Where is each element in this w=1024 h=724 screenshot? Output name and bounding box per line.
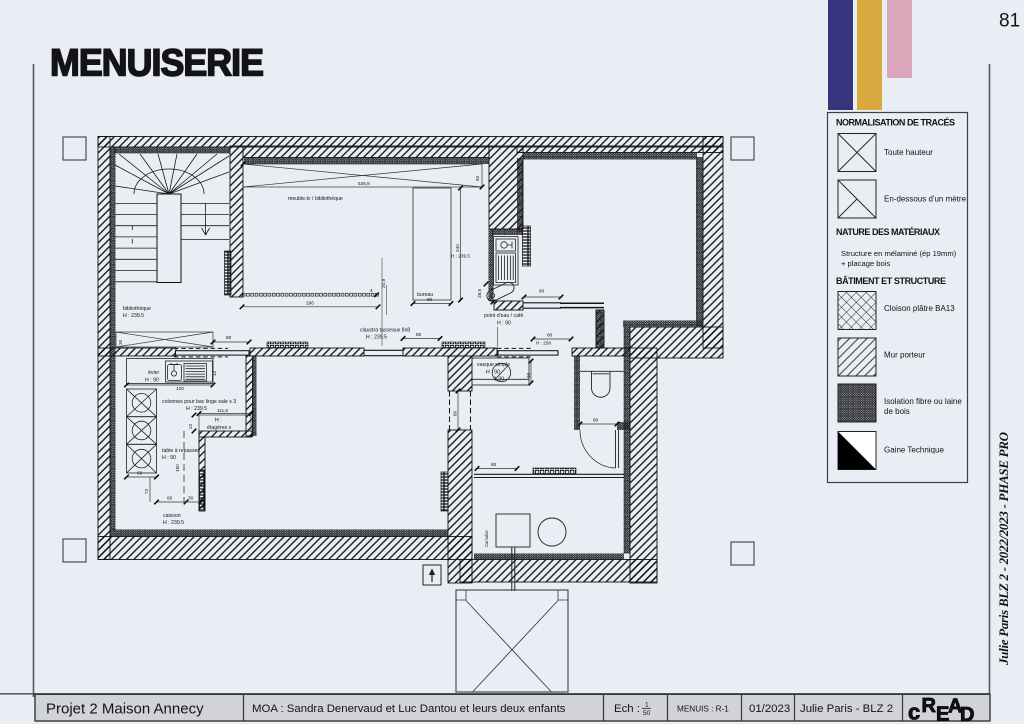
svg-text:60: 60 <box>167 496 173 501</box>
svg-text:H : 239.5: H : 239.5 <box>451 254 470 259</box>
svg-text:Ech :: Ech : <box>614 703 640 715</box>
svg-text:Mur porteur: Mur porteur <box>884 351 926 360</box>
svg-text:80: 80 <box>226 335 232 340</box>
svg-text:H :: H : <box>215 418 222 424</box>
svg-text:H : 90: H : 90 <box>497 321 511 327</box>
svg-text:D: D <box>960 704 974 724</box>
svg-text:de bois: de bois <box>884 407 910 416</box>
svg-text:01/2023: 01/2023 <box>749 703 790 715</box>
svg-text:colonnes pour bac linge sale x: colonnes pour bac linge sale x 3 <box>162 399 236 405</box>
svg-text:étagères x: étagères x <box>207 425 232 431</box>
svg-text:H : 90: H : 90 <box>145 378 159 384</box>
svg-text:296: 296 <box>306 301 314 306</box>
svg-text:50: 50 <box>475 175 480 181</box>
svg-text:72: 72 <box>144 488 149 494</box>
svg-text:80: 80 <box>416 332 422 337</box>
svg-text:MOA : Sandra Denervaud et Luc: MOA : Sandra Denervaud et Luc Dantou et … <box>252 703 566 715</box>
svg-text:526,8: 526,8 <box>358 181 370 186</box>
svg-text:80: 80 <box>453 410 458 416</box>
svg-text:1,20: 1,20 <box>494 377 504 383</box>
svg-text:80: 80 <box>427 297 433 302</box>
svg-text:+ placage bois: + placage bois <box>841 259 890 268</box>
svg-text:MENUIS : R-1: MENUIS : R-1 <box>677 705 729 714</box>
svg-text:H : 239.5: H : 239.5 <box>366 335 387 341</box>
svg-text:H : 250: H : 250 <box>536 341 552 346</box>
svg-text:NORMALISATION DE TRACÉS: NORMALISATION DE TRACÉS <box>836 118 955 128</box>
svg-text:1: 1 <box>645 702 649 709</box>
svg-text:Projet 2 Maison Annecy: Projet 2 Maison Annecy <box>46 701 204 718</box>
svg-text:meuble.tv / bibliothèque: meuble.tv / bibliothèque <box>288 196 343 202</box>
svg-text:80: 80 <box>539 289 545 294</box>
svg-text:80: 80 <box>593 418 599 423</box>
svg-text:Isolation fibre ou laine: Isolation fibre ou laine <box>884 397 962 406</box>
svg-text:30: 30 <box>188 496 194 501</box>
svg-text:30: 30 <box>118 339 123 345</box>
svg-text:R: R <box>922 695 937 717</box>
svg-text:H : 239.5: H : 239.5 <box>186 406 207 412</box>
svg-text:H : 239.5: H : 239.5 <box>163 520 184 526</box>
svg-text:Gaine Technique: Gaine Technique <box>884 446 944 455</box>
svg-text:Cloison plâtre BA13: Cloison plâtre BA13 <box>884 304 955 313</box>
svg-text:Julie Paris BLZ 2 - 2022/2023: Julie Paris BLZ 2 - 2022/2023 - PHASE PR… <box>996 431 1011 666</box>
svg-text:4: 4 <box>370 288 373 293</box>
svg-text:80: 80 <box>547 333 553 338</box>
svg-text:50: 50 <box>643 710 651 717</box>
svg-text:point d'eau / café: point d'eau / café <box>484 313 523 319</box>
svg-text:Structure en mélaminé (ép 19mm: Structure en mélaminé (ép 19mm) <box>841 249 957 258</box>
svg-text:vasque simple: vasque simple <box>477 362 510 368</box>
svg-text:claustra tasseaux 8x8: claustra tasseaux 8x8 <box>360 328 410 334</box>
svg-text:H : 90: H : 90 <box>486 370 500 376</box>
svg-text:12: 12 <box>212 370 217 376</box>
svg-text:28,6: 28,6 <box>477 288 482 298</box>
svg-text:240: 240 <box>455 244 460 252</box>
svg-text:120: 120 <box>176 386 184 391</box>
svg-text:H : 90: H : 90 <box>162 455 176 461</box>
svg-text:22: 22 <box>188 423 193 429</box>
svg-text:81: 81 <box>999 11 1020 32</box>
svg-text:MENUISERIE: MENUISERIE <box>50 43 263 85</box>
svg-text:caisson: caisson <box>163 513 181 519</box>
svg-text:111,5: 111,5 <box>217 408 228 413</box>
svg-text:90: 90 <box>526 372 531 378</box>
svg-text:150: 150 <box>175 464 180 472</box>
svg-text:bibliothèque: bibliothèque <box>123 306 151 312</box>
svg-text:H : 239.5: H : 239.5 <box>123 313 144 319</box>
svg-text:NATURE DES MATÉRIAUX: NATURE DES MATÉRIAUX <box>836 227 940 237</box>
svg-text:En-dessous d'un mètre: En-dessous d'un mètre <box>884 195 967 204</box>
svg-text:BÂTIMENT ET STRUCTURE: BÂTIMENT ET STRUCTURE <box>836 275 946 286</box>
svg-text:c: c <box>908 700 920 724</box>
svg-text:évier: évier <box>148 370 160 376</box>
svg-text:table à repasser: table à repasser <box>162 448 199 454</box>
svg-text:Julie Paris - BLZ 2: Julie Paris - BLZ 2 <box>800 703 893 715</box>
svg-text:Cumulus: Cumulus <box>484 530 489 547</box>
svg-text:Toute hauteur: Toute hauteur <box>884 148 933 157</box>
svg-text:80: 80 <box>491 462 497 467</box>
svg-text:60: 60 <box>137 471 143 476</box>
